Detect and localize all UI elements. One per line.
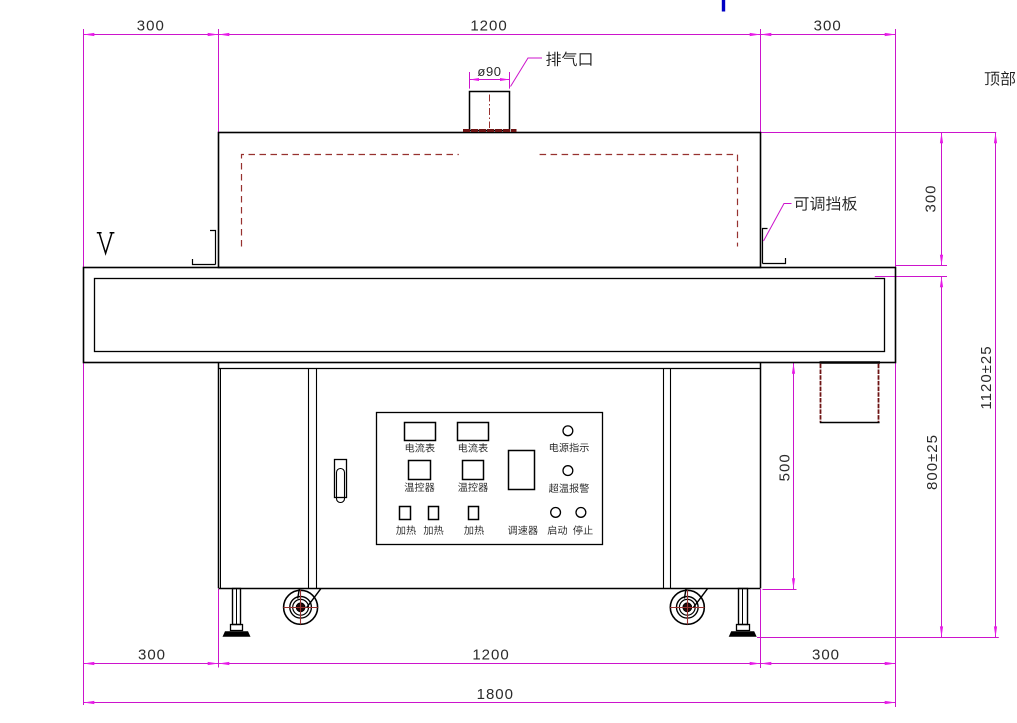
svg-text:300: 300	[814, 18, 842, 35]
svg-text:1800: 1800	[477, 686, 514, 703]
svg-text:300: 300	[137, 18, 165, 35]
svg-text:1200: 1200	[472, 647, 509, 664]
svg-text:300: 300	[138, 647, 166, 664]
svg-text:300: 300	[923, 184, 940, 212]
svg-text:300: 300	[812, 647, 840, 664]
svg-text:1200: 1200	[470, 18, 507, 35]
svg-text:ø90: ø90	[477, 64, 501, 79]
svg-text:1120±25: 1120±25	[978, 345, 995, 409]
svg-text:800±25: 800±25	[924, 434, 941, 490]
svg-text:500: 500	[776, 453, 793, 481]
